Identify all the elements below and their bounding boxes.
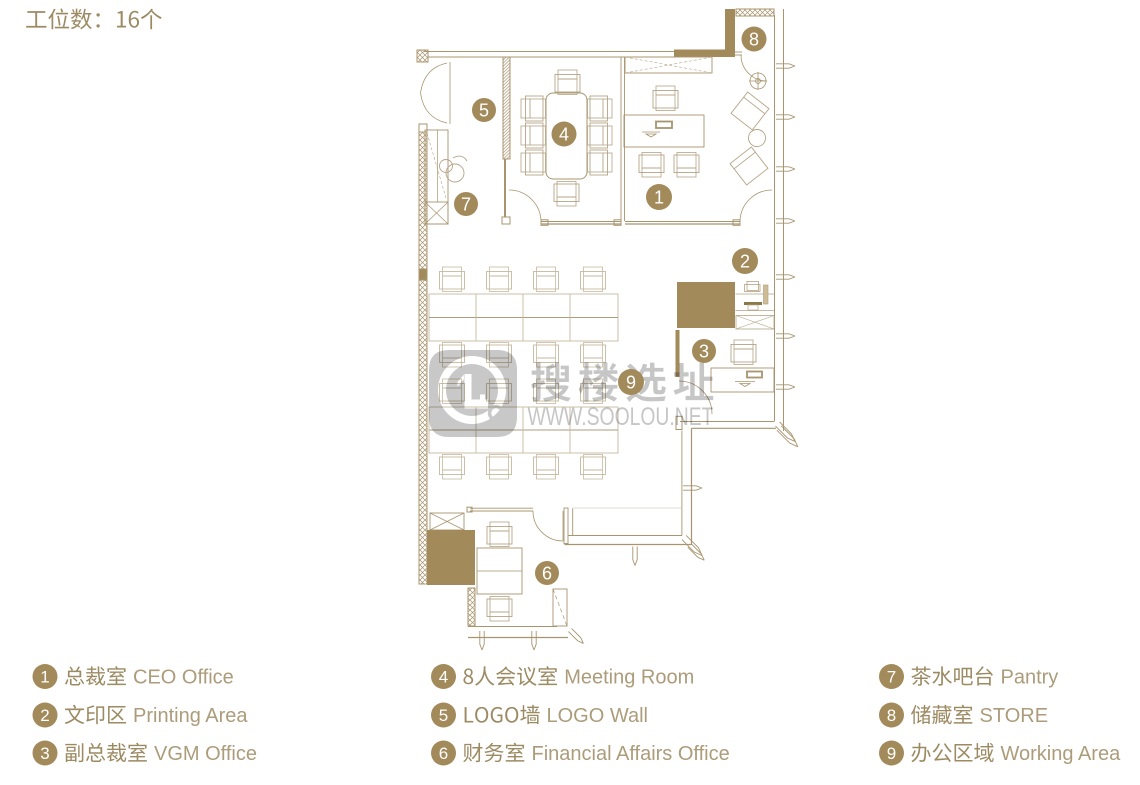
svg-text:Pantry: Pantry	[1001, 667, 1059, 689]
svg-text:Financial Affairs Office: Financial Affairs Office	[532, 743, 730, 765]
svg-text:7: 7	[461, 194, 471, 214]
svg-text:CEO Office: CEO Office	[133, 667, 234, 689]
svg-text:6: 6	[439, 744, 448, 763]
svg-text:8: 8	[887, 706, 896, 725]
svg-text:1: 1	[654, 187, 664, 207]
svg-text:5: 5	[439, 706, 448, 725]
svg-text:Working Area: Working Area	[1001, 743, 1122, 765]
svg-text:6: 6	[542, 563, 552, 583]
svg-text:Meeting Room: Meeting Room	[564, 667, 694, 689]
svg-text:Printing Area: Printing Area	[133, 705, 248, 727]
svg-text:1: 1	[40, 667, 49, 686]
svg-text:9: 9	[626, 372, 636, 392]
svg-text:3: 3	[699, 341, 709, 361]
svg-text:VGM Office: VGM Office	[154, 743, 257, 765]
svg-text:3: 3	[40, 744, 49, 763]
svg-text:8: 8	[749, 29, 759, 49]
svg-text:2: 2	[740, 251, 750, 271]
svg-text:4: 4	[559, 124, 569, 144]
svg-text:STORE: STORE	[980, 705, 1049, 727]
svg-text:5: 5	[479, 100, 489, 120]
svg-text:WWW.SOOLOU.NET: WWW.SOOLOU.NET	[528, 403, 714, 431]
svg-text:9: 9	[887, 744, 896, 763]
svg-text:7: 7	[887, 667, 896, 686]
svg-text:4: 4	[439, 667, 448, 686]
svg-text:2: 2	[40, 706, 49, 725]
svg-text:LOGO Wall: LOGO Wall	[547, 705, 649, 727]
